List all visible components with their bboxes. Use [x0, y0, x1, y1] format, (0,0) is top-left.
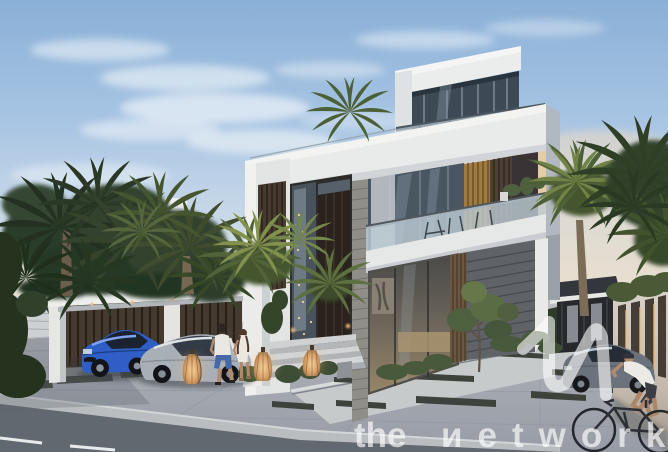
- svg-text:иetwork: иetwork: [441, 416, 668, 452]
- svg-text:the: the: [354, 416, 407, 452]
